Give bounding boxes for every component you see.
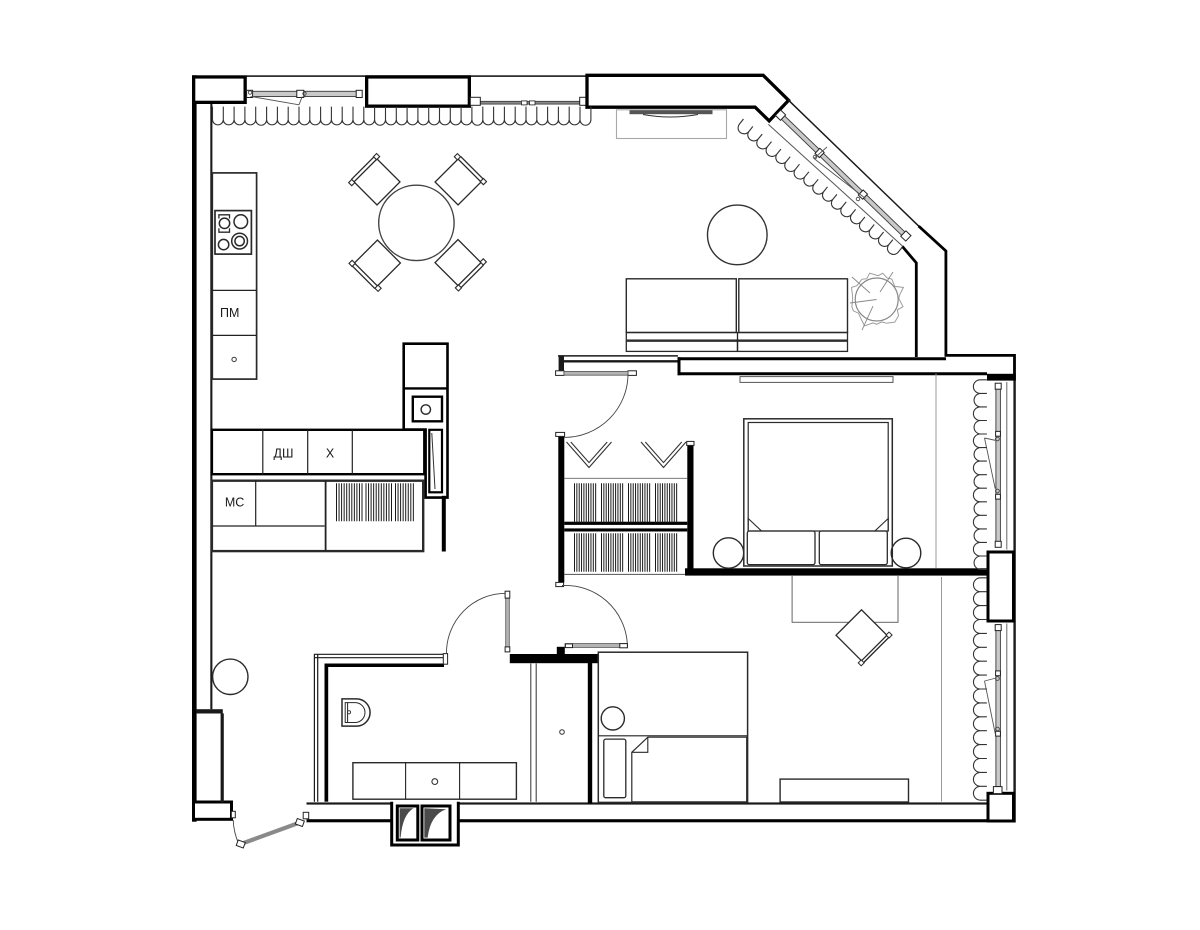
svg-text:ПМ: ПМ bbox=[220, 306, 239, 320]
svg-text:Х: Х bbox=[326, 447, 335, 461]
svg-text:МС: МС bbox=[225, 496, 244, 510]
svg-text:ДШ: ДШ bbox=[274, 447, 294, 461]
